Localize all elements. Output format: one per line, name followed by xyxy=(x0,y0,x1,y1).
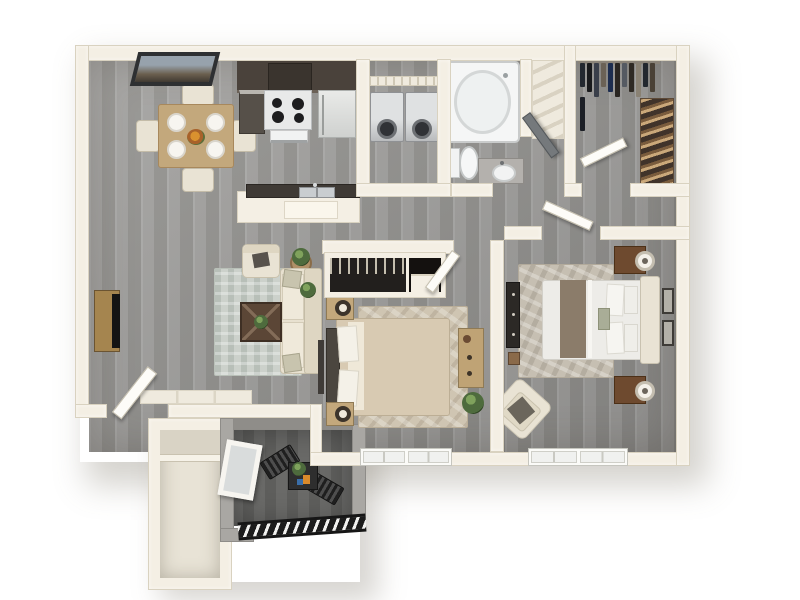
bed-pillow xyxy=(624,286,638,314)
garment xyxy=(636,63,641,97)
vanity-sink xyxy=(492,164,516,182)
floor-plant xyxy=(300,282,316,298)
garment xyxy=(580,97,585,131)
bedroom1-nightstand-bottom xyxy=(326,402,354,426)
throw-pillow xyxy=(252,252,270,269)
kitchen-upper-cabinets xyxy=(237,61,356,93)
peninsula-panel xyxy=(284,201,338,219)
toilet-bowl xyxy=(459,146,479,180)
dresser-decor xyxy=(463,335,471,343)
table-item-orange xyxy=(303,475,310,484)
dining-chair-left xyxy=(136,120,160,152)
bed-sheet-fold xyxy=(588,280,592,358)
wall-right xyxy=(676,45,690,466)
window-pane xyxy=(408,451,450,463)
place-setting xyxy=(206,113,225,132)
bed-pillow xyxy=(624,324,638,352)
wall-picture xyxy=(662,288,674,314)
oven-front xyxy=(270,130,308,143)
dryer-door xyxy=(412,119,432,139)
dining-chair-bottom xyxy=(182,168,214,192)
garment xyxy=(650,63,655,92)
vanity-faucet xyxy=(500,161,504,165)
round-lamp xyxy=(635,381,655,401)
tub-basin xyxy=(454,70,511,134)
washer-door xyxy=(377,119,397,139)
wall-closet-bottom-a xyxy=(564,183,582,197)
wood-stool xyxy=(508,352,520,365)
garment xyxy=(587,63,592,92)
bedroom1-nightstand-top xyxy=(326,296,354,320)
bedroom2-nightstand-bottom xyxy=(614,376,646,404)
garment xyxy=(580,63,585,87)
bedroom1-closet-frame xyxy=(324,252,446,298)
bedroom2-nightstand-top xyxy=(614,246,646,274)
range-hood xyxy=(268,63,312,91)
dresser-knob xyxy=(512,313,515,316)
sofa xyxy=(280,268,320,372)
wall-closet-bottom-b xyxy=(630,183,690,197)
peninsula-countertop xyxy=(246,184,360,198)
burner xyxy=(272,98,282,108)
storage-shelf xyxy=(160,454,220,462)
window-pane xyxy=(531,451,577,463)
bedroom2-window xyxy=(528,448,628,466)
accent-armchair xyxy=(242,244,280,278)
place-setting xyxy=(167,140,186,159)
table-lamp xyxy=(335,406,351,422)
wall-bedroom-divider xyxy=(490,240,504,452)
dresser-knob xyxy=(512,293,515,296)
bed-runner xyxy=(560,280,586,358)
bathtub xyxy=(445,61,520,143)
sofa-pillow xyxy=(282,353,302,373)
garment xyxy=(594,63,599,97)
bedroom1-plant xyxy=(462,392,484,414)
wall-left xyxy=(75,45,89,418)
garment xyxy=(622,63,627,87)
tub-faucet xyxy=(503,73,508,78)
table-item-blue xyxy=(297,479,303,485)
dresser-knob xyxy=(467,355,472,360)
patio-plant xyxy=(292,462,306,476)
garment xyxy=(629,63,634,92)
wall-laundry-bath xyxy=(437,59,451,190)
bedroom1-wall-mirror xyxy=(318,340,324,394)
burner xyxy=(292,98,304,110)
wall-bedroom2-top-b xyxy=(600,226,690,240)
kitchen-range xyxy=(264,90,312,130)
entry-tile-landing xyxy=(140,390,252,404)
round-lamp xyxy=(635,251,655,271)
garment xyxy=(615,63,620,97)
bedroom2-bed xyxy=(542,276,660,362)
dresser-knob xyxy=(512,333,515,336)
bed-pillow xyxy=(337,325,359,362)
sink-basin xyxy=(317,187,335,198)
place-setting xyxy=(206,140,225,159)
wall-bedroom2-top-a xyxy=(504,226,542,240)
garment xyxy=(608,63,613,92)
accent-pillow xyxy=(598,308,610,330)
table-lamp xyxy=(335,300,351,316)
dresser-knob xyxy=(467,371,472,376)
laundry-wire-shelf xyxy=(368,76,441,86)
tv-screen xyxy=(112,294,120,348)
place-setting xyxy=(167,113,186,132)
wall-picture xyxy=(662,320,674,346)
wall-kitchen-laundry xyxy=(356,59,370,197)
window-pane xyxy=(580,451,626,463)
table-centerpiece xyxy=(187,129,205,145)
faucet xyxy=(313,183,317,187)
shoe-rack xyxy=(640,98,674,186)
storage-upper-compartment xyxy=(160,430,220,456)
dining-chair-top xyxy=(182,84,214,106)
fridge-handle xyxy=(322,95,324,135)
bedroom1-closet-clothes xyxy=(330,258,406,292)
sofa-pillow xyxy=(282,269,302,289)
kitchen-base-cabinet xyxy=(239,90,265,134)
wall-bath-bottom xyxy=(451,183,493,197)
bedroom1-window xyxy=(360,448,452,466)
wall-bottom-living-b xyxy=(168,404,322,418)
bedroom1-dresser xyxy=(458,328,484,388)
dining-wall-window xyxy=(130,52,220,86)
garment xyxy=(601,63,606,87)
dining-table xyxy=(158,104,234,168)
wall-bottom-living-a xyxy=(75,404,107,418)
bathroom-vanity xyxy=(478,158,524,184)
dryer xyxy=(405,92,439,142)
bedroom1-bed xyxy=(326,318,452,414)
washer xyxy=(370,92,404,142)
bed-headboard xyxy=(640,276,660,364)
coffee-table-plant xyxy=(254,315,268,329)
wall-laundry-bottom xyxy=(356,183,451,197)
sink-basin xyxy=(299,187,317,198)
refrigerator xyxy=(318,90,356,138)
burner xyxy=(272,111,284,123)
closet-garments xyxy=(580,63,660,99)
patio-wall-right xyxy=(352,424,366,520)
wall-linen-closet xyxy=(564,45,576,197)
burner xyxy=(294,113,304,123)
floor-plan-render xyxy=(0,0,800,600)
window-pane xyxy=(363,451,405,463)
garment xyxy=(643,63,648,87)
side-table-plant xyxy=(292,248,310,266)
bedroom2-dresser xyxy=(506,282,520,348)
